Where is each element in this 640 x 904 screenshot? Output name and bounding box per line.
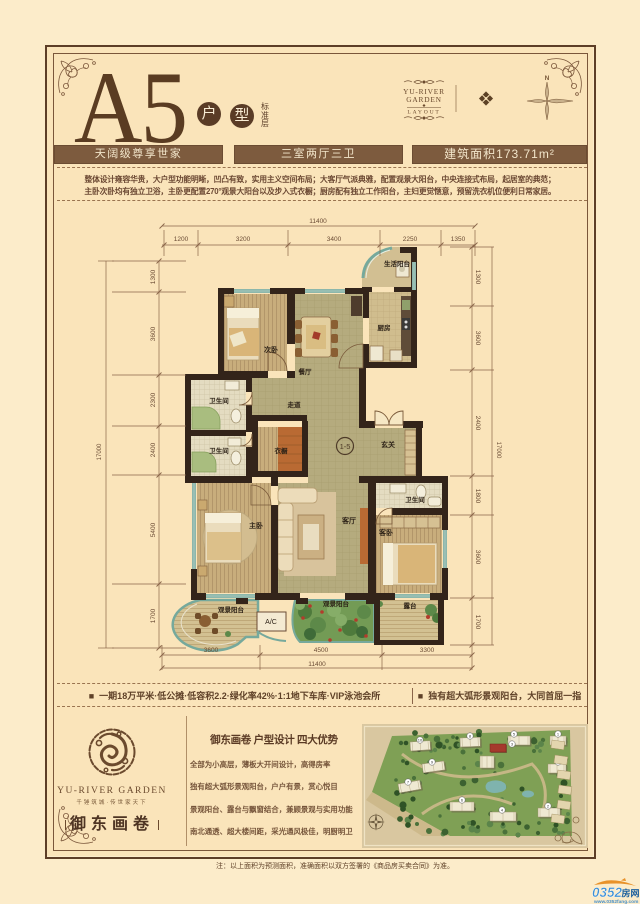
svg-text:1-5: 1-5: [340, 442, 351, 451]
svg-text:A/C: A/C: [265, 619, 277, 626]
svg-text:LAYOUT: LAYOUT: [407, 110, 440, 116]
svg-text:主卧: 主卧: [249, 521, 263, 530]
svg-text:1200: 1200: [174, 236, 189, 243]
svg-text:2400: 2400: [474, 416, 481, 431]
svg-text:11400: 11400: [309, 218, 327, 225]
svg-text:厨房: 厨房: [378, 323, 392, 332]
svg-text:走道: 走道: [287, 400, 302, 409]
svg-text:2250: 2250: [403, 236, 418, 243]
svg-text:卫生间: 卫生间: [209, 446, 229, 455]
svg-text:1300: 1300: [474, 270, 481, 285]
svg-text:餐厅: 餐厅: [298, 367, 313, 376]
svg-text:3600: 3600: [204, 647, 219, 654]
svg-text:客厅: 客厅: [341, 516, 356, 525]
svg-text:3300: 3300: [420, 647, 435, 654]
svg-text:0352: 0352: [592, 885, 623, 900]
svg-text:观景阳台: 观景阳台: [323, 599, 350, 608]
svg-text:卫生间: 卫生间: [405, 495, 425, 504]
svg-text:2400: 2400: [150, 442, 157, 457]
svg-text:1700: 1700: [474, 615, 481, 630]
svg-text:5400: 5400: [150, 522, 157, 537]
svg-text:卫生间: 卫生间: [209, 396, 229, 405]
svg-text:17000: 17000: [97, 443, 103, 460]
svg-text:观景阳台: 观景阳台: [218, 605, 245, 614]
svg-text:玄关: 玄关: [381, 440, 395, 449]
svg-text:生活阳台: 生活阳台: [384, 259, 411, 268]
svg-text:GARDEN: GARDEN: [406, 95, 442, 104]
svg-text:露台: 露台: [404, 601, 418, 610]
svg-text:www.0352fang.com: www.0352fang.com: [593, 899, 638, 904]
svg-text:3600: 3600: [474, 550, 481, 565]
svg-text:次卧: 次卧: [264, 345, 278, 354]
svg-text:2300: 2300: [150, 392, 157, 407]
svg-text:1800: 1800: [474, 489, 481, 504]
svg-text:客卧: 客卧: [378, 528, 393, 537]
svg-text:3600: 3600: [150, 326, 157, 341]
svg-text:衣橱: 衣橱: [275, 446, 289, 455]
svg-text:N: N: [545, 75, 550, 82]
svg-text:1700: 1700: [150, 608, 157, 623]
svg-text:3600: 3600: [474, 331, 481, 346]
svg-text:3400: 3400: [327, 236, 342, 243]
svg-text:房网: 房网: [622, 888, 640, 899]
svg-text:1350: 1350: [451, 236, 466, 243]
svg-text:11400: 11400: [308, 661, 326, 668]
svg-text:17000: 17000: [495, 442, 501, 459]
svg-text:4500: 4500: [314, 647, 329, 654]
svg-text:3200: 3200: [236, 236, 251, 243]
svg-text:10: 10: [418, 738, 423, 743]
svg-text:1300: 1300: [150, 269, 157, 284]
